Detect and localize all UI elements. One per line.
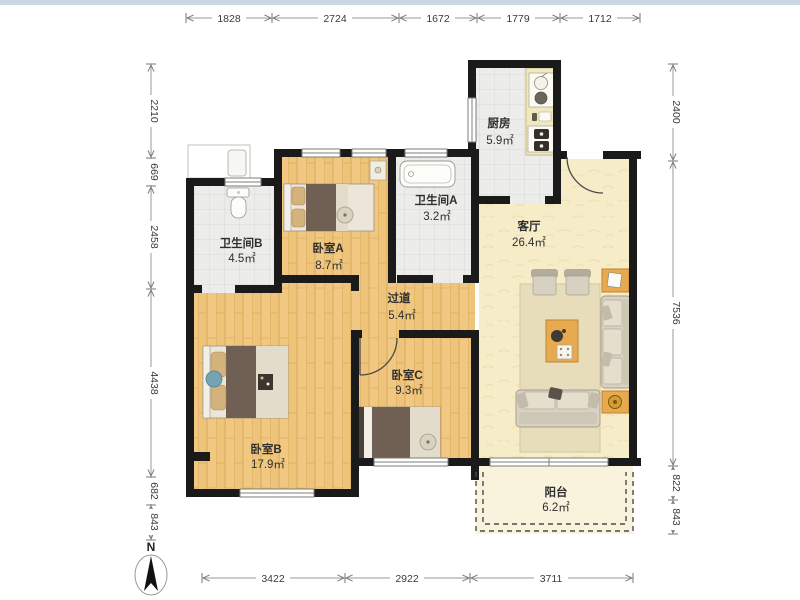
bedroom-a-label: 卧室A <box>312 241 343 255</box>
window <box>374 458 448 466</box>
balcony-label: 阳台 <box>545 485 568 499</box>
hallway-label: 过道 <box>388 291 411 305</box>
dim-left-3: 2458 <box>148 225 160 249</box>
side-table-icon <box>602 391 629 413</box>
bedroom-b-label: 卧室B <box>250 442 281 456</box>
bathroom-b-area: 4.5㎡ <box>228 252 256 265</box>
window <box>405 149 447 157</box>
balcony-area: 6.2㎡ <box>542 501 570 514</box>
dim-left-2: 669 <box>148 163 160 181</box>
dim-right-3: 822 <box>670 474 682 492</box>
window <box>302 149 340 157</box>
kitchen-counter-icon <box>526 68 557 155</box>
bedroom-c-label: 卧室C <box>391 368 422 382</box>
window <box>490 458 608 466</box>
stove-icon <box>528 126 555 152</box>
window <box>468 98 476 142</box>
window <box>352 149 386 157</box>
balcony-floor <box>476 466 633 534</box>
floor-plan-svg: 卫生间B 4.5㎡ 卧室A 8.7㎡ 卫生间A 3.2㎡ 厨房 5.9㎡ 客厅 … <box>0 0 800 600</box>
side-table-icon <box>602 269 629 292</box>
bedroom-a-area: 8.7㎡ <box>315 259 343 272</box>
dim-bottom-3: 3711 <box>540 573 563 585</box>
bedroom-b-area: 17.9㎡ <box>251 458 285 471</box>
bathroom-a-label: 卫生间A <box>415 193 458 207</box>
floor-plan-page: 卫生间B 4.5㎡ 卧室A 8.7㎡ 卫生间A 3.2㎡ 厨房 5.9㎡ 客厅 … <box>0 0 800 600</box>
bathroom-b-label: 卫生间B <box>220 236 263 250</box>
dim-left-4: 4438 <box>148 371 160 395</box>
sofa-icon <box>515 387 600 427</box>
dim-left-5: 682 <box>148 482 160 500</box>
hallway-area: 5.4㎡ <box>388 309 416 322</box>
living-room-floor-top <box>561 159 629 204</box>
dim-top-2: 2724 <box>323 13 347 25</box>
window <box>240 489 314 497</box>
dim-top-1: 1828 <box>217 13 241 25</box>
dim-right-1: 2400 <box>670 100 682 124</box>
window <box>225 178 261 186</box>
dim-left-1: 2210 <box>148 99 160 123</box>
dim-bottom-1: 3422 <box>261 573 285 585</box>
dim-top-4: 1779 <box>506 13 530 25</box>
dim-left-6: 843 <box>148 513 160 531</box>
dim-top-3: 1672 <box>426 13 450 25</box>
chaise-sofa-icon <box>600 296 631 388</box>
armchair-icon <box>564 269 591 295</box>
bathroom-a-area: 3.2㎡ <box>423 210 451 223</box>
coffee-table-icon <box>546 320 578 362</box>
dim-right-4: 843 <box>670 508 682 526</box>
dim-top-5: 1712 <box>588 13 612 25</box>
top-strip <box>0 0 800 5</box>
bathtub-icon <box>400 161 455 187</box>
bed-c-icon <box>352 407 440 458</box>
ac-unit-icon <box>188 145 250 178</box>
armchair-icon <box>531 269 558 295</box>
dim-right-2: 7536 <box>670 301 682 325</box>
living-room-label: 客厅 <box>517 219 541 233</box>
living-room-area: 26.4㎡ <box>512 236 546 249</box>
kitchen-area: 5.9㎡ <box>486 134 514 147</box>
dim-bottom-2: 2922 <box>395 573 419 585</box>
bed-b-icon <box>203 346 288 418</box>
north-label: N <box>147 540 156 554</box>
bedroom-c-area: 9.3㎡ <box>395 384 423 397</box>
kitchen-label: 厨房 <box>488 116 511 130</box>
